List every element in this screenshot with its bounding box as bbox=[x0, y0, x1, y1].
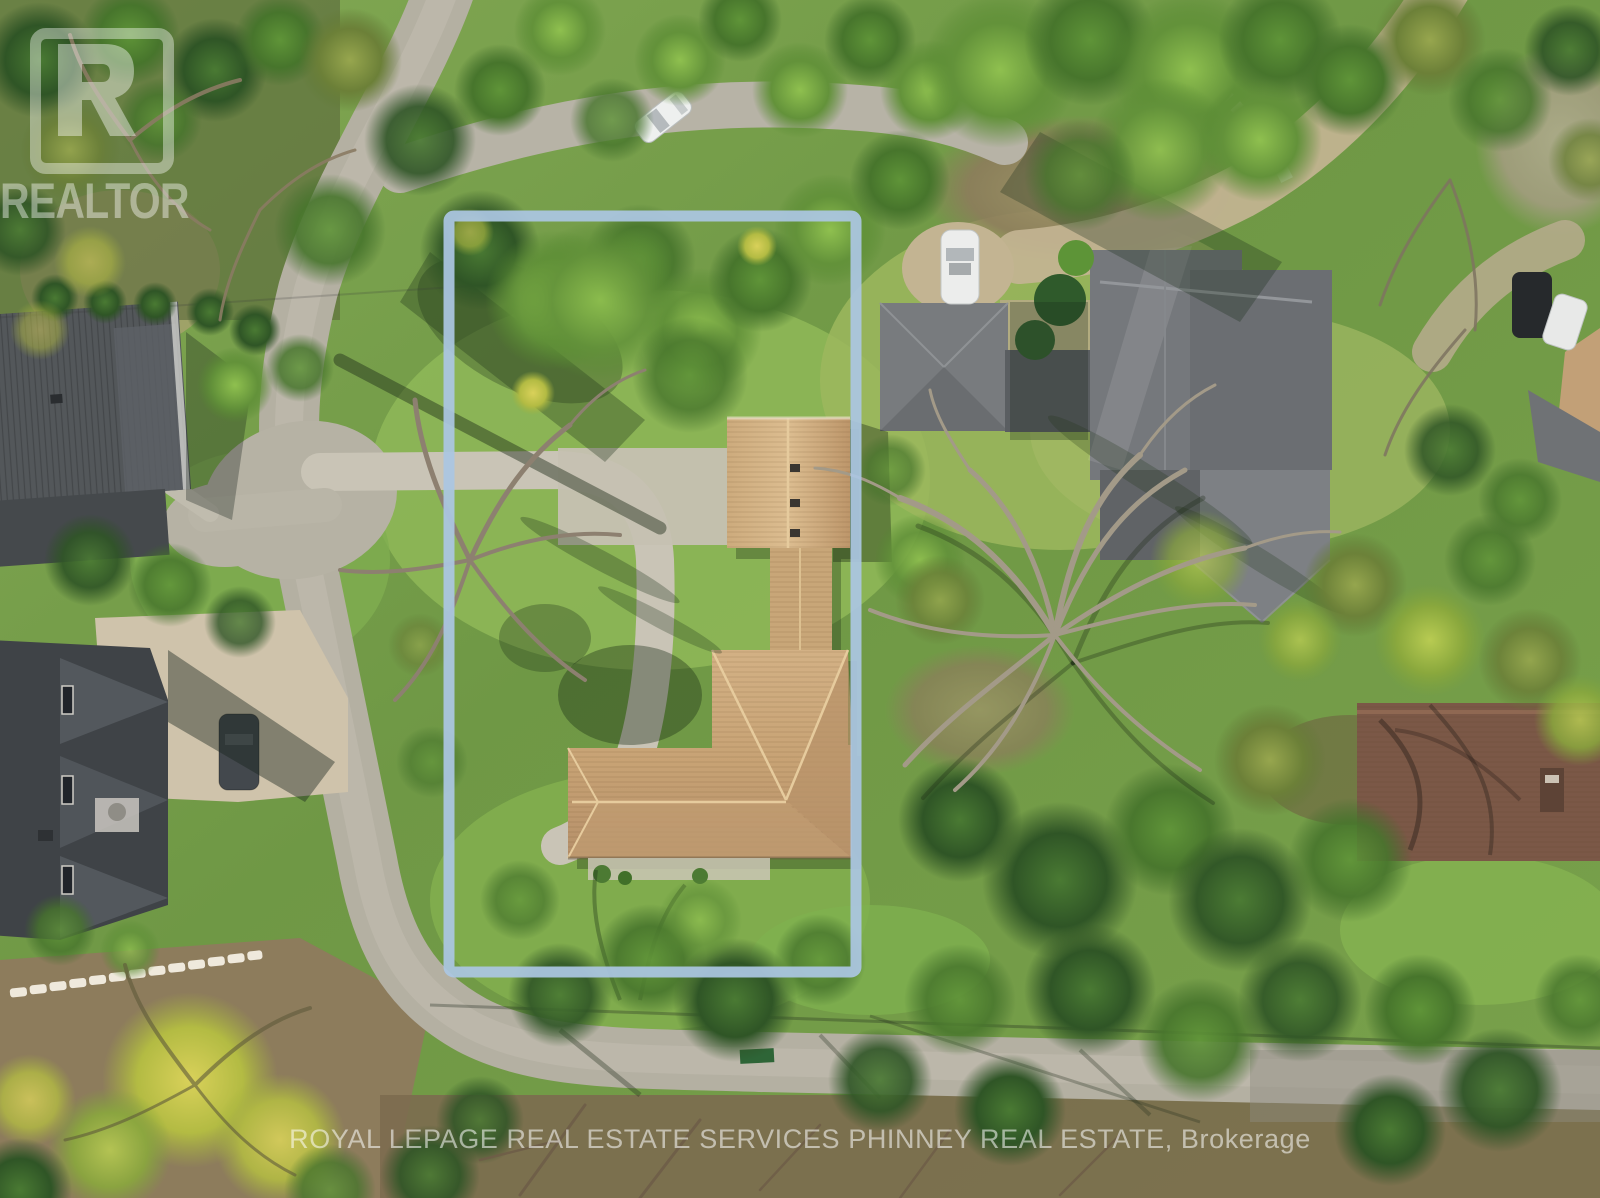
white-car-right bbox=[941, 230, 979, 304]
aerial-scene bbox=[0, 0, 1600, 1198]
house-lower-left bbox=[0, 640, 168, 940]
aerial-photo-stage: REALTOR ROYAL LEPAGE REAL ESTATE SERVICE… bbox=[0, 0, 1600, 1198]
